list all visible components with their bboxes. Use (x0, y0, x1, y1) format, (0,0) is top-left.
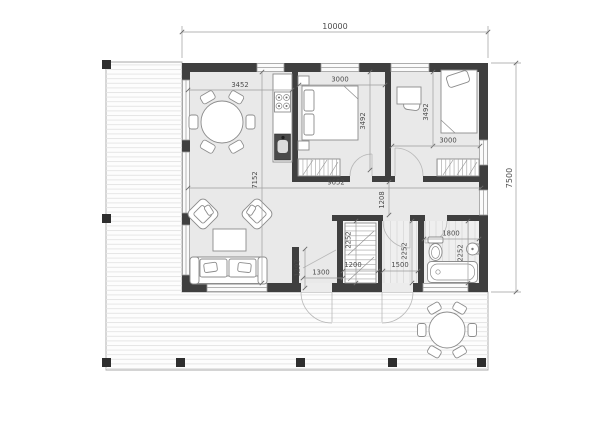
sofa (190, 257, 267, 284)
window-living-bottom (207, 284, 267, 292)
back-door-threshold (382, 283, 413, 292)
dim-label: 2252 (401, 242, 409, 259)
dim-label: 3452 (231, 81, 248, 89)
pillow (238, 262, 252, 272)
window-right-upper (480, 140, 488, 165)
washbasin-icon (467, 243, 480, 255)
dim-label: 1208 (378, 191, 386, 208)
window-living-left-upper (183, 152, 190, 213)
bathtub-icon (428, 262, 478, 283)
dim-label: 7152 (251, 171, 259, 188)
double-bed (298, 76, 358, 150)
window-living-left-lower (183, 225, 190, 275)
pillow (304, 114, 314, 135)
nightstand (298, 76, 309, 85)
dim-label: 10000 (322, 22, 347, 31)
dim-label: 3000 (439, 137, 456, 145)
window-bedroom2-top (391, 64, 429, 72)
single-bed (441, 70, 477, 133)
dim-label: 2252 (457, 244, 465, 261)
dim-label: 1200 (344, 261, 361, 269)
window-bedroom1-top (321, 64, 359, 72)
kitchen-counter (273, 74, 292, 162)
dim-overall-width: 10000 (180, 22, 490, 58)
window-dining-top (257, 64, 284, 72)
dim-label: 3492 (359, 112, 367, 129)
coffee-table (213, 229, 246, 251)
dim-label: 3492 (422, 103, 430, 120)
dim-label: 1800 (442, 230, 459, 238)
dim-label: 9652 (327, 179, 344, 187)
pillow (304, 90, 314, 111)
desk (397, 87, 421, 104)
toilet-icon (428, 237, 443, 261)
wardrobe-bedroom2 (437, 159, 479, 176)
pillow (204, 262, 218, 273)
window-bathroom-bottom (423, 284, 468, 292)
dim-label: 7500 (505, 168, 514, 188)
dim-label: 1297 (294, 259, 302, 276)
dim-overall-height: 7500 (491, 61, 521, 294)
wardrobe-bedroom1 (298, 159, 340, 176)
floor-plan: 1000075003452300034923492300071529652120… (0, 0, 600, 425)
stove-icon (275, 92, 291, 112)
dim-label: 3000 (331, 76, 348, 84)
kitchen-sink-icon (275, 134, 291, 160)
nightstand (298, 141, 309, 150)
window-right-lower (480, 190, 488, 215)
dim-label: 2252 (345, 231, 353, 248)
dim-label: 1300 (312, 269, 329, 277)
dim-label: 1500 (391, 261, 408, 269)
